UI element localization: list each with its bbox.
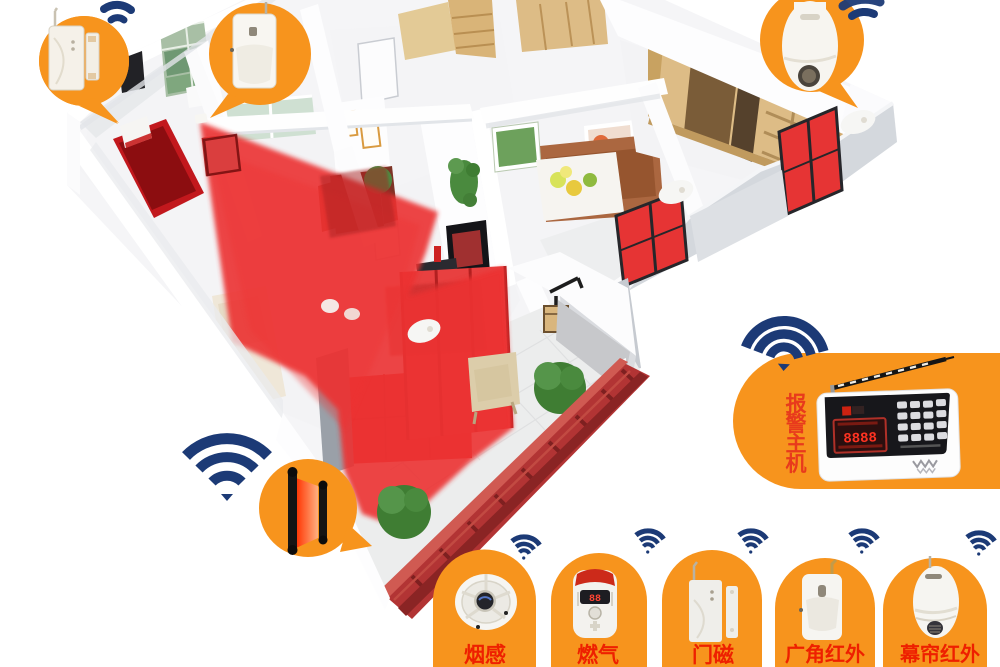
svg-text:机: 机 [786,452,807,476]
svg-text:广角红外: 广角红外 [785,642,865,666]
svg-text:幕帘红外: 幕帘红外 [899,642,980,666]
svg-text:烟感: 烟感 [464,643,506,667]
svg-text:88: 88 [589,594,601,605]
svg-text:门磁: 门磁 [692,643,734,667]
svg-text:燃气: 燃气 [577,643,619,667]
